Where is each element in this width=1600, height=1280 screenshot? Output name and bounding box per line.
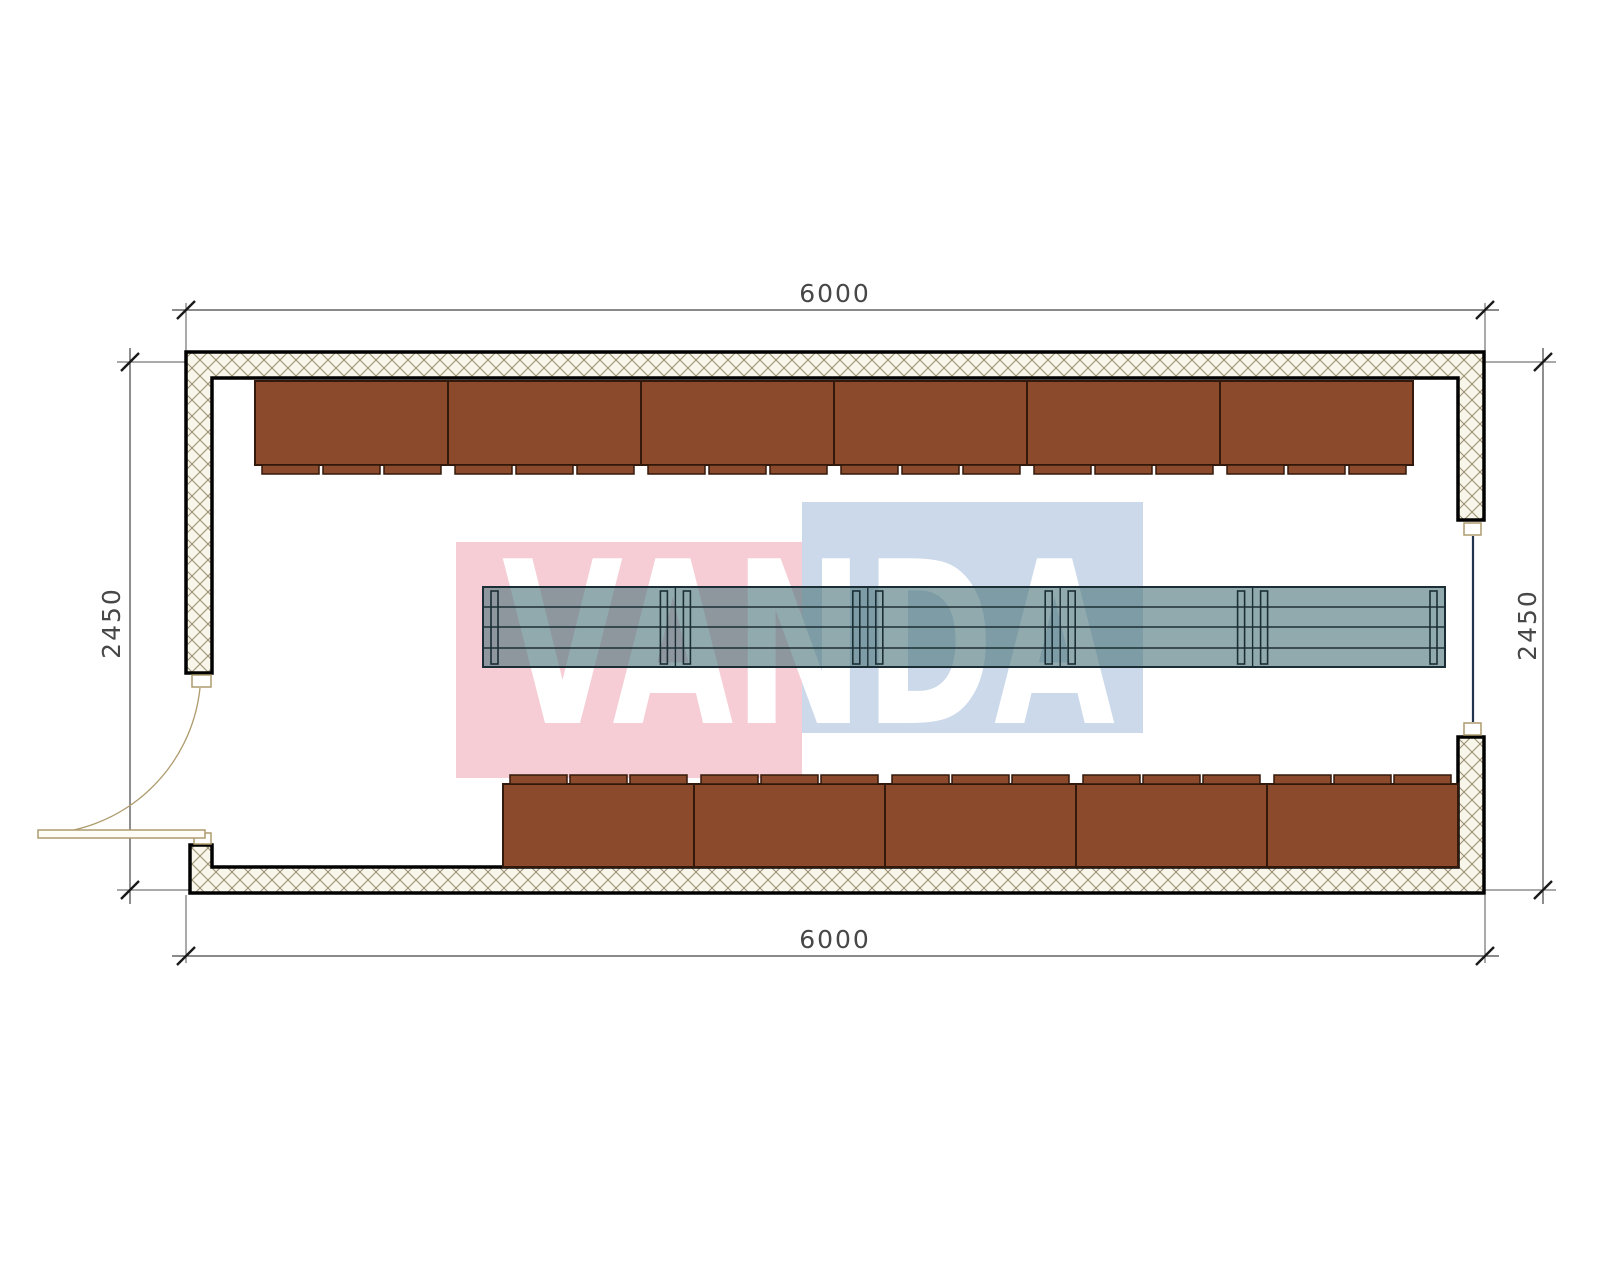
bench-cushion-tab — [510, 775, 567, 784]
bottom-dimension-label: 6000 — [799, 925, 871, 954]
bench-cushion-tab — [1394, 775, 1451, 784]
entrance-door — [38, 675, 211, 844]
door-leaf — [38, 830, 205, 838]
bench-cushion-tab — [841, 465, 898, 474]
bench-cushion-tab — [902, 465, 959, 474]
bench-cushion-tab — [709, 465, 766, 474]
bench-cushion-tab — [648, 465, 705, 474]
bench-cushion-tab — [1083, 775, 1140, 784]
bench-unit — [1076, 784, 1267, 867]
bench-unit — [1220, 381, 1413, 465]
bench-cushion-tab — [952, 775, 1009, 784]
conference-table — [483, 587, 1445, 667]
bench-unit — [255, 381, 448, 465]
bench-cushion-tab — [262, 465, 319, 474]
bench-cushion-tab — [455, 465, 512, 474]
floor-plan-drawing: 6000 6000 2450 2450 VANDA — [0, 0, 1600, 1280]
bench-cushion-tab — [963, 465, 1020, 474]
bench-cushion-tab — [1143, 775, 1200, 784]
right-wall-window — [1464, 523, 1481, 735]
right-dimension-label: 2450 — [1513, 589, 1542, 661]
bench-unit — [834, 381, 1027, 465]
bench-cushion-tab — [577, 465, 634, 474]
floor-plan-page: 6000 6000 2450 2450 VANDA — [0, 0, 1600, 1280]
top-dimension-label: 6000 — [799, 279, 871, 308]
bench-cushion-tab — [516, 465, 573, 474]
bench-unit — [1267, 784, 1458, 867]
bench-cushion-tab — [761, 775, 818, 784]
window-jamb-upper — [1464, 523, 1481, 535]
bench-cushion-tab — [384, 465, 441, 474]
bench-unit — [503, 784, 694, 867]
bench-cushion-tab — [1349, 465, 1406, 474]
left-dimension-label: 2450 — [97, 587, 126, 659]
window-jamb-lower — [1464, 723, 1481, 735]
bench-cushion-tab — [1034, 465, 1091, 474]
bench-cushion-tab — [821, 775, 878, 784]
bench-unit — [694, 784, 885, 867]
bench-cushion-tab — [892, 775, 949, 784]
bench-unit — [885, 784, 1076, 867]
bench-cushion-tab — [1227, 465, 1284, 474]
bench-cushion-tab — [630, 775, 687, 784]
door-jamb-upper — [192, 675, 211, 687]
bench-unit — [448, 381, 641, 465]
bench-unit — [1027, 381, 1220, 465]
bench-cushion-tab — [1274, 775, 1331, 784]
door-swing-arc — [38, 688, 200, 834]
bottom-bench-row — [503, 775, 1458, 867]
bench-cushion-tab — [701, 775, 758, 784]
bench-cushion-tab — [1095, 465, 1152, 474]
bench-cushion-tab — [1288, 465, 1345, 474]
bench-cushion-tab — [1156, 465, 1213, 474]
bench-cushion-tab — [770, 465, 827, 474]
bench-cushion-tab — [323, 465, 380, 474]
top-bench-row — [255, 381, 1413, 474]
bench-cushion-tab — [1012, 775, 1069, 784]
bench-cushion-tab — [1334, 775, 1391, 784]
bench-cushion-tab — [570, 775, 627, 784]
bench-cushion-tab — [1203, 775, 1260, 784]
bench-unit — [641, 381, 834, 465]
